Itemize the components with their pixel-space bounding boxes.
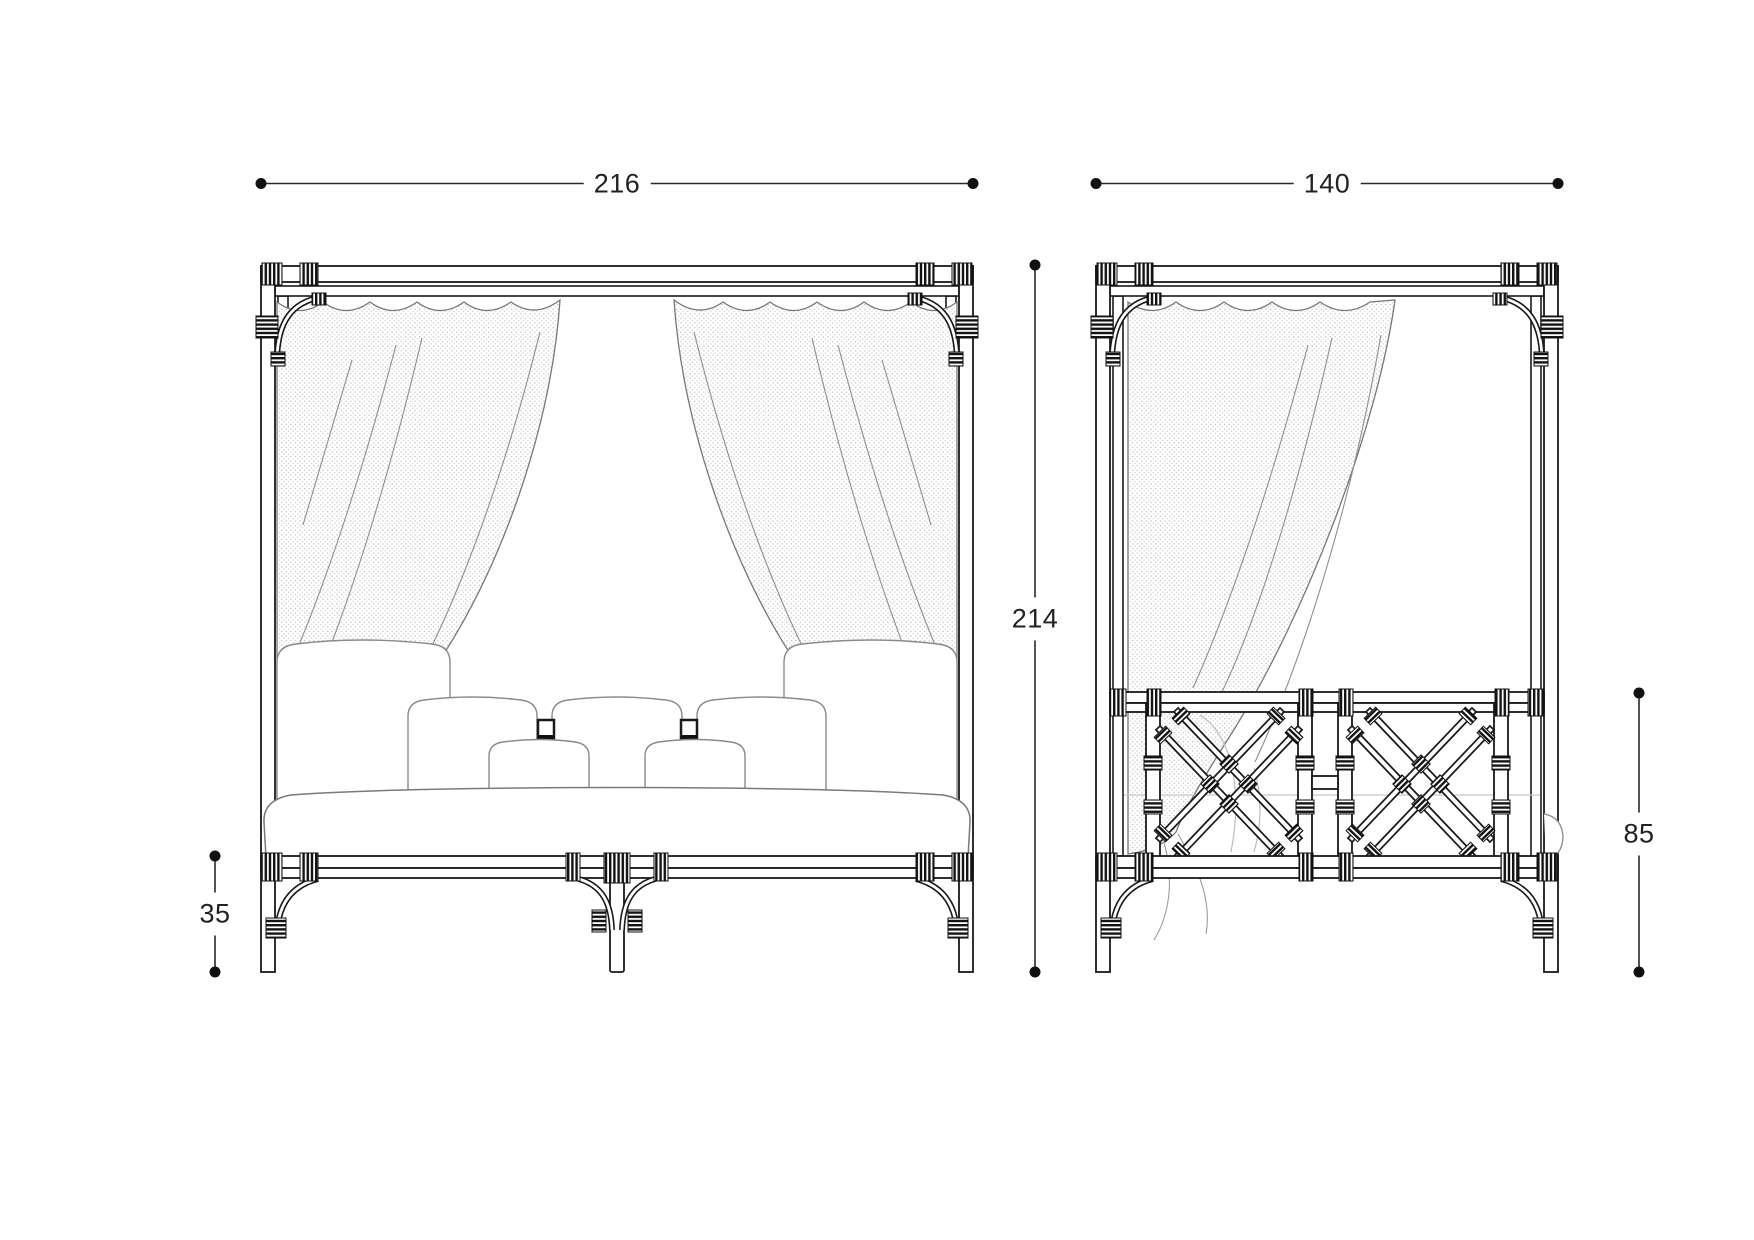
daybed-drawing (0, 0, 1754, 1240)
side-view (1091, 263, 1563, 972)
side-rear-post-left (1113, 296, 1123, 856)
railing-stile-4 (1494, 703, 1508, 868)
dimension-label-base-height: 35 (194, 893, 235, 936)
dimension-label-front-width: 216 (584, 167, 651, 202)
side-railing-top-rail (1110, 692, 1544, 703)
dimension-label-rail-height: 85 (1618, 813, 1659, 856)
technical-drawing-canvas: 216 140 214 35 85 (0, 0, 1754, 1240)
mattress-edge (1544, 814, 1563, 859)
side-rear-post-right (1531, 296, 1541, 856)
front-view (256, 263, 978, 972)
dimension-label-side-depth: 140 (1294, 167, 1361, 202)
front-canopy-rail-inner (275, 286, 959, 296)
side-canopy-rail (1096, 266, 1558, 282)
frame-clip-left (538, 720, 554, 740)
side-bottom-rail-inner (1096, 868, 1558, 878)
railing-center-connector (1312, 776, 1338, 789)
dimension-label-total-height: 214 (1007, 598, 1064, 641)
side-canopy-rail-inner (1110, 286, 1544, 296)
seat-cushion (264, 788, 970, 859)
lattice-panel-2 (1352, 712, 1490, 856)
frame-clip-right (681, 720, 697, 740)
front-canopy-rail (261, 266, 973, 282)
side-curtain (1128, 300, 1395, 940)
side-bottom-rail (1096, 856, 1558, 868)
